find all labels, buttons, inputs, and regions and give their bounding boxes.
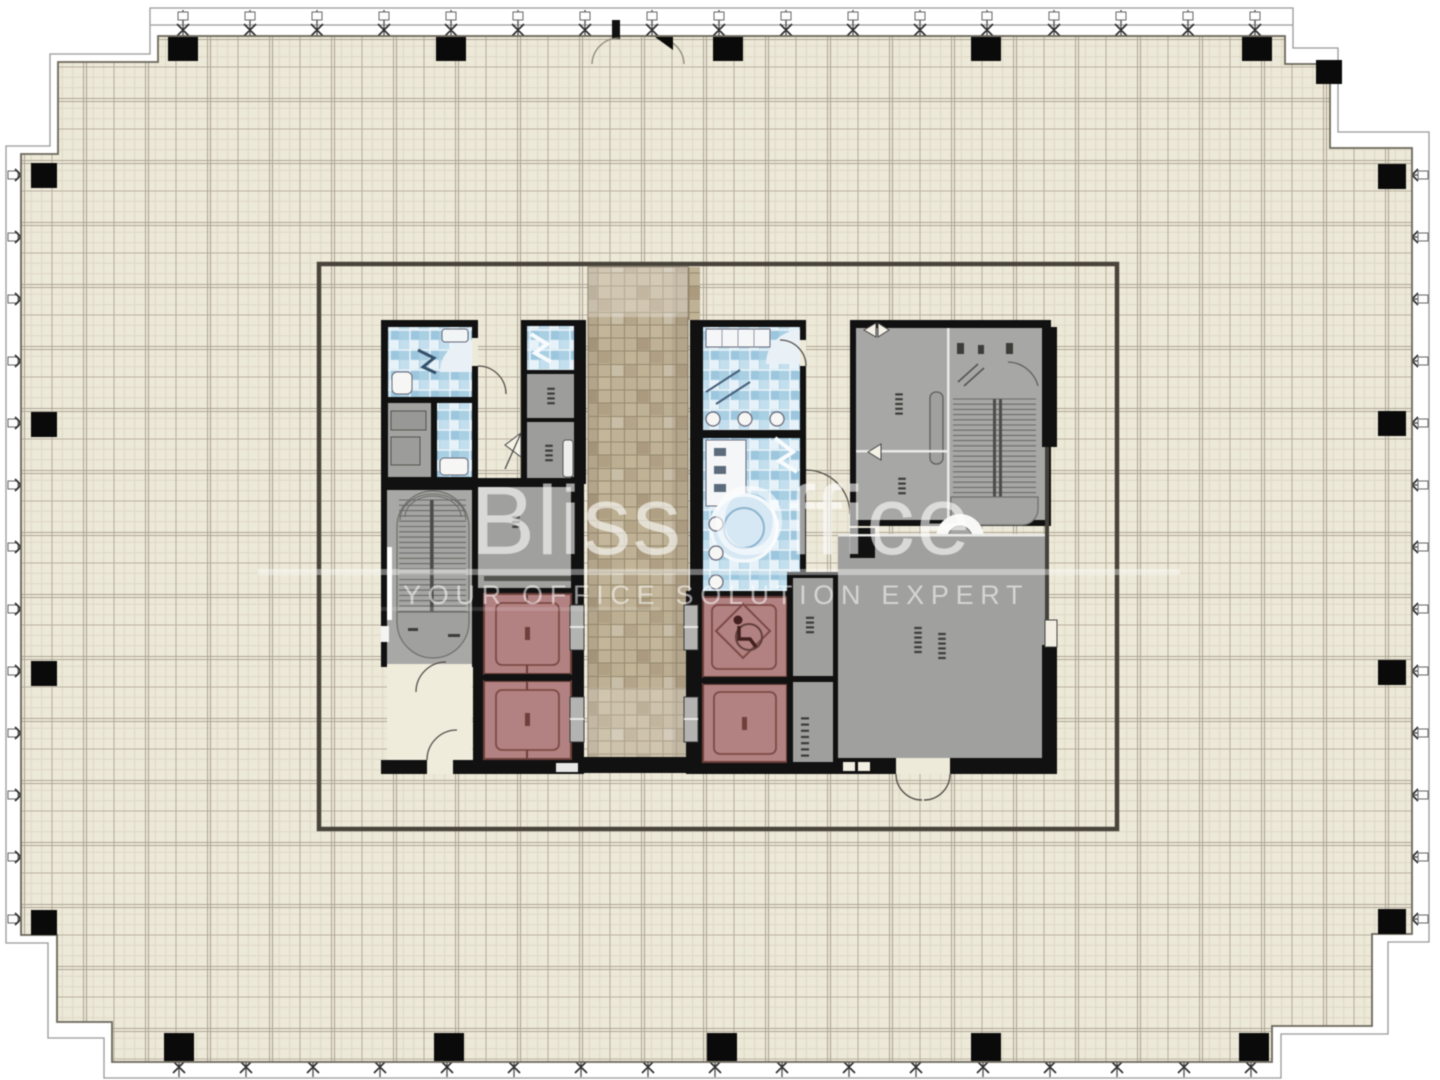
svg-text:YOUR OFFICE SOLUTION EXPERT: YOUR OFFICE SOLUTION EXPERT bbox=[403, 580, 1031, 610]
svg-text:Bliss Office: Bliss Office bbox=[470, 466, 971, 575]
